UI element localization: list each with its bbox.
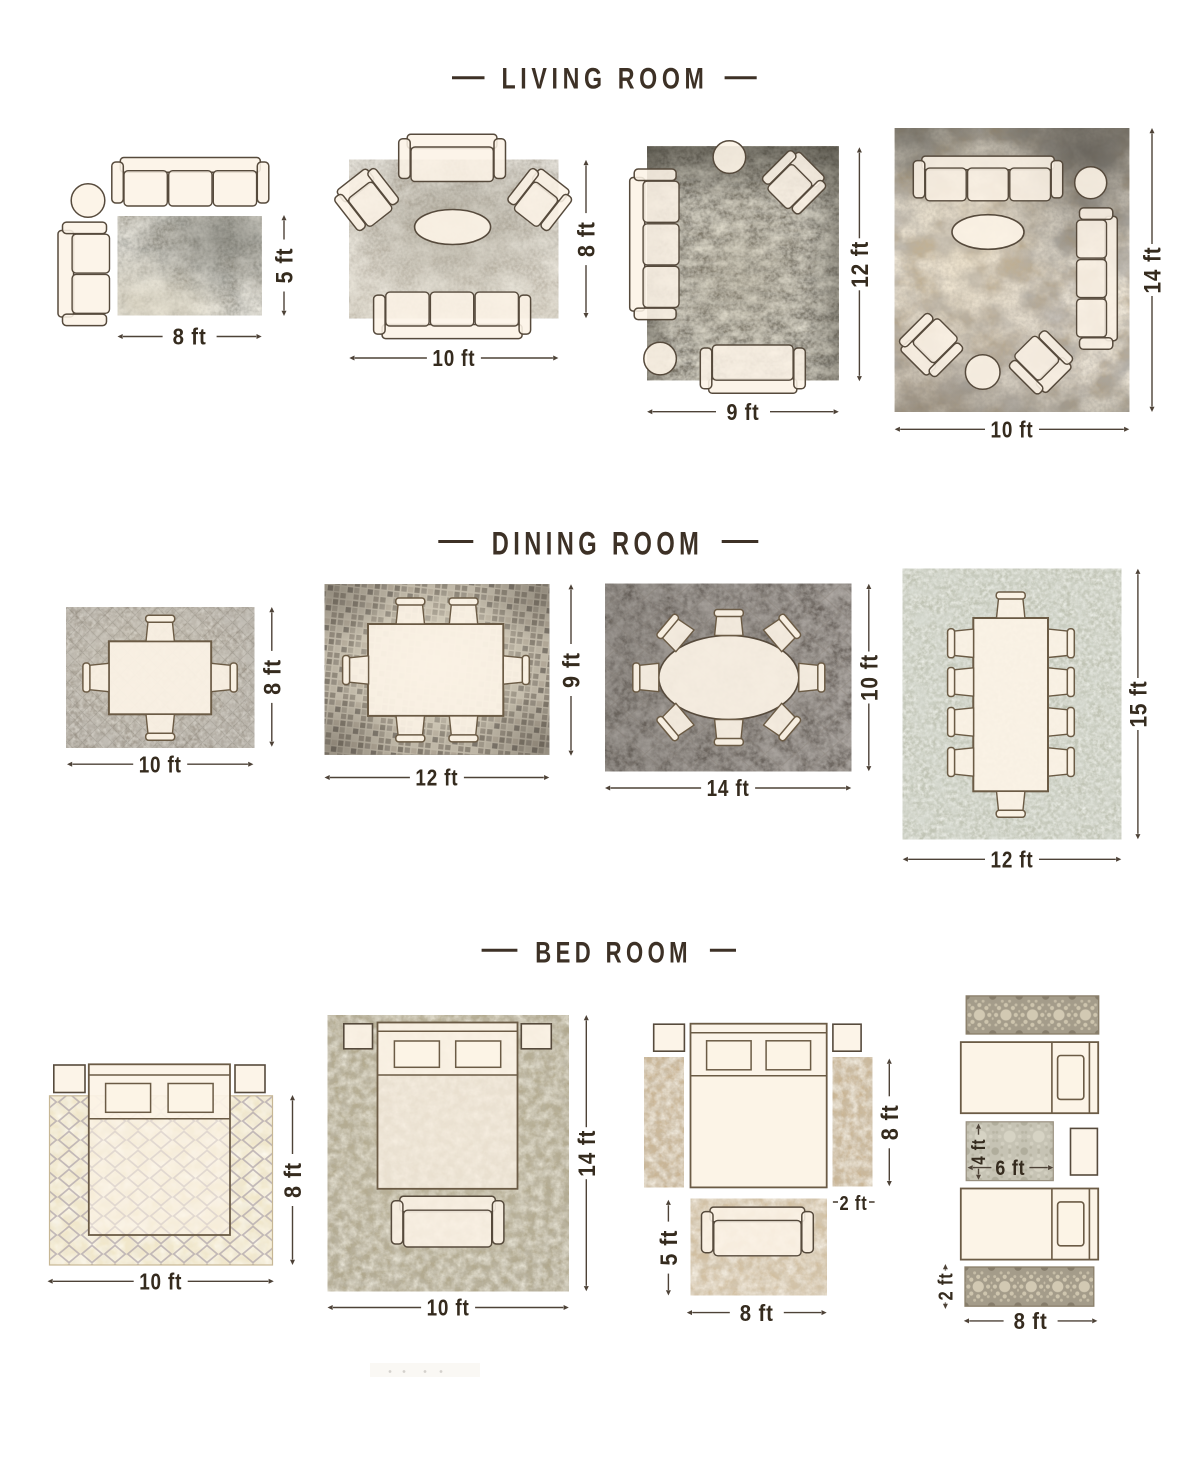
svg-text:10 ft: 10 ft — [427, 1295, 470, 1321]
svg-text:8 ft: 8 ft — [280, 1162, 307, 1198]
svg-text:9 ft: 9 ft — [727, 399, 760, 425]
svg-text:10 ft: 10 ft — [991, 417, 1034, 443]
svg-text:8 ft: 8 ft — [1014, 1308, 1048, 1334]
svg-text:BED ROOM: BED ROOM — [535, 937, 692, 970]
svg-text:4 ft: 4 ft — [969, 1139, 990, 1165]
svg-text:5 ft: 5 ft — [656, 1230, 683, 1266]
svg-text:6 ft: 6 ft — [995, 1157, 1025, 1180]
svg-text:LIVING ROOM: LIVING ROOM — [502, 63, 709, 96]
svg-text:8 ft: 8 ft — [877, 1104, 904, 1140]
svg-text:15 ft: 15 ft — [1125, 681, 1152, 728]
svg-text:8 ft: 8 ft — [173, 324, 207, 350]
svg-text:14 ft: 14 ft — [707, 775, 750, 801]
svg-text:2 ft: 2 ft — [840, 1193, 868, 1215]
svg-text:8 ft: 8 ft — [740, 1300, 774, 1326]
svg-text:10 ft: 10 ft — [432, 345, 475, 371]
svg-text:5 ft: 5 ft — [272, 248, 299, 284]
svg-text:10 ft: 10 ft — [139, 751, 182, 777]
svg-text:14 ft: 14 ft — [574, 1130, 601, 1177]
svg-text:9 ft: 9 ft — [559, 652, 586, 688]
svg-text:8 ft: 8 ft — [259, 659, 286, 695]
svg-text:12 ft: 12 ft — [991, 847, 1034, 873]
svg-text:10 ft: 10 ft — [139, 1269, 182, 1295]
svg-text:2 ft: 2 ft — [936, 1273, 958, 1301]
svg-text:8 ft: 8 ft — [574, 221, 601, 257]
svg-text:10 ft: 10 ft — [856, 654, 883, 701]
svg-text:14 ft: 14 ft — [1140, 247, 1167, 294]
svg-text:DINING ROOM: DINING ROOM — [492, 526, 704, 562]
svg-text:12 ft: 12 ft — [847, 241, 874, 288]
svg-text:12 ft: 12 ft — [415, 765, 458, 791]
